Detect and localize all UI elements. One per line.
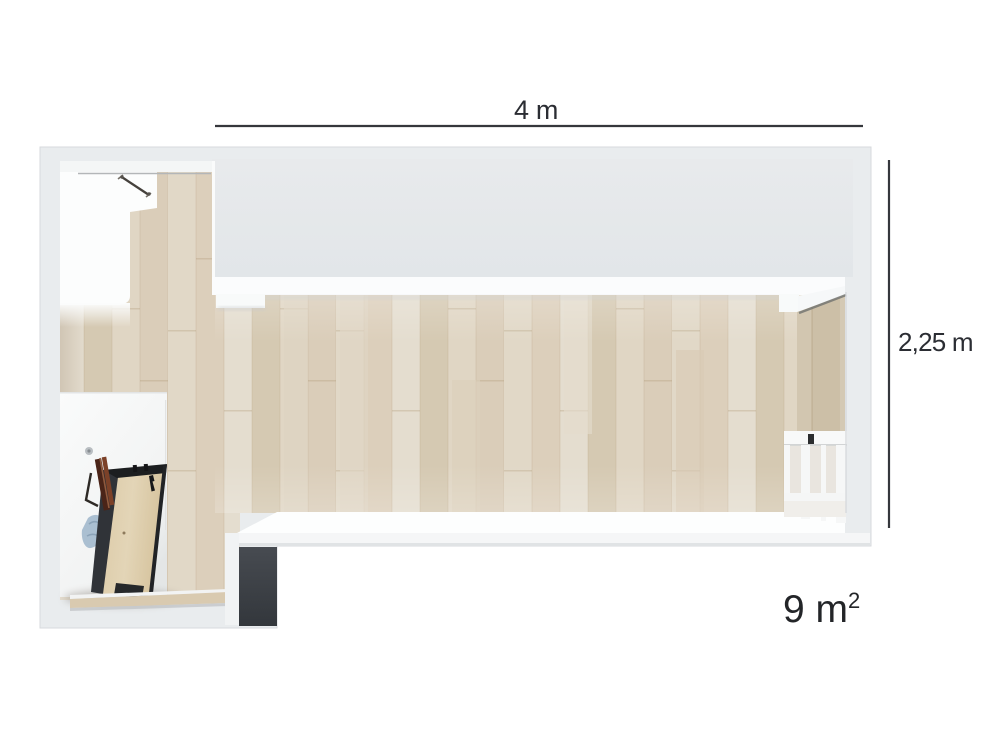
svg-text:4 m: 4 m bbox=[514, 95, 558, 125]
svg-text:2,25 m: 2,25 m bbox=[898, 327, 973, 357]
